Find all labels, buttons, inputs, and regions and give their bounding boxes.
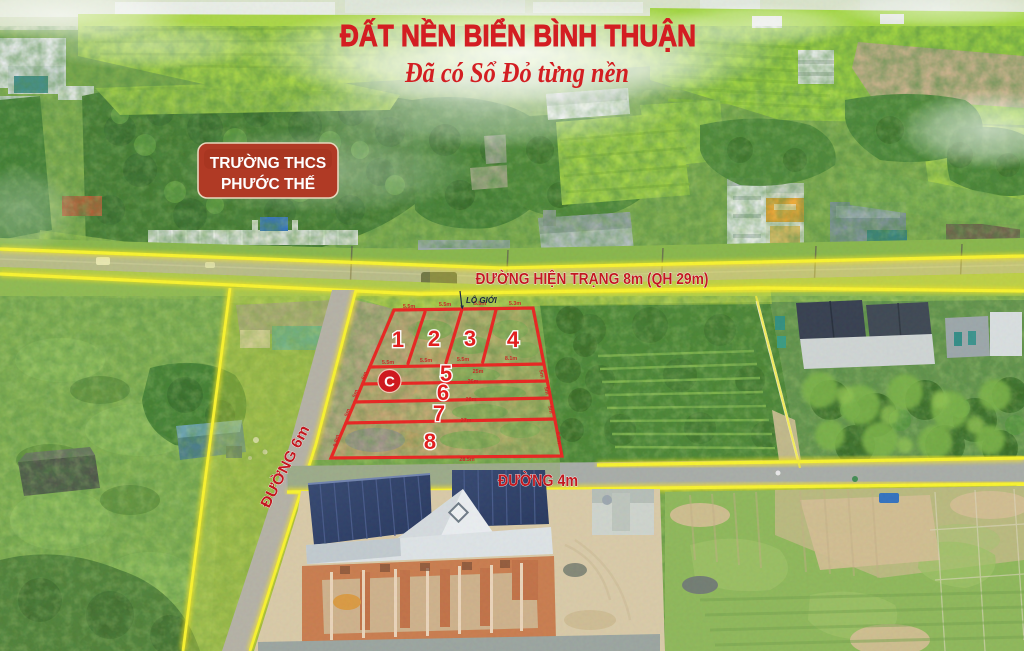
- svg-text:Đã có Sổ Đỏ từng nền: Đã có Sổ Đỏ từng nền: [404, 58, 629, 89]
- svg-text:TRƯỜNG THCS: TRƯỜNG THCS: [210, 154, 327, 172]
- svg-text:ĐẤT NỀN BIỂN BÌNH THUẬN: ĐẤT NỀN BIỂN BÌNH THUẬN: [340, 17, 696, 53]
- svg-text:ĐƯỜNG HIỆN TRẠNG 8m (QH 29m): ĐƯỜNG HIỆN TRẠNG 8m (QH 29m): [476, 270, 709, 288]
- svg-text:ĐƯỜNG 4m: ĐƯỜNG 4m: [498, 471, 578, 490]
- svg-text:PHƯỚC THẾ: PHƯỚC THẾ: [221, 175, 315, 193]
